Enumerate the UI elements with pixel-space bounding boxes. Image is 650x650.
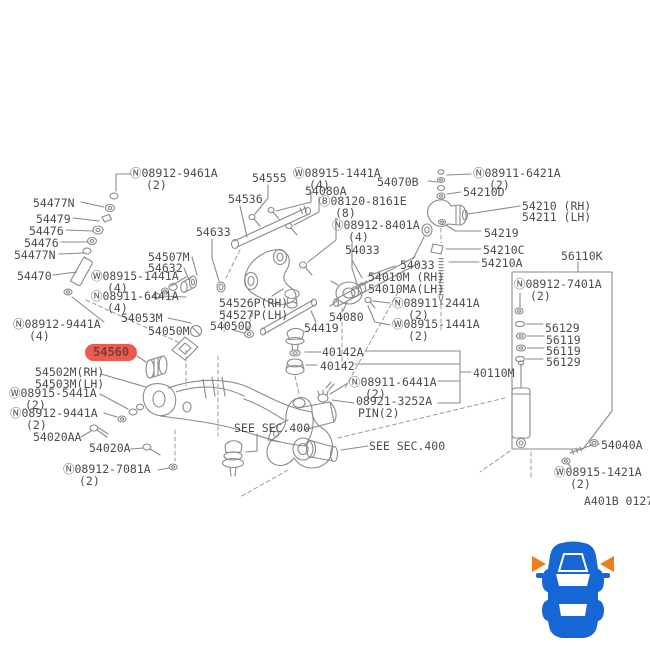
car-top-view-icon: [532, 542, 614, 639]
part-label-54470: 54470: [17, 270, 52, 282]
part-label-54477N-a: 54477N: [33, 197, 75, 209]
see-section-400-label-b: SEE SEC.400: [369, 440, 445, 452]
part-label-40142: 40142: [320, 360, 355, 372]
hardware-label-08912-9441A-b: Ⓝ08912-9441A(2): [10, 407, 98, 432]
hardware-label-08912-9461A: Ⓝ08912-9461A(2): [130, 167, 218, 192]
hardware-label-08921-3252A-pin: 08921-3252APIN(2): [356, 395, 432, 420]
part-label-54536: 54536: [228, 193, 263, 205]
hardware-label-08912-8401A: Ⓝ08912-8401A(4): [332, 219, 420, 244]
hardware-label-08120-8161E: Ⓑ08120-8161E(8): [319, 195, 407, 220]
part-label-54020AA: 54020AA: [33, 431, 81, 443]
diagram-code: A401B 0127: [584, 495, 650, 507]
part-label-54070B: 54070B: [377, 176, 419, 188]
part-label-54210D: 54210D: [463, 186, 505, 198]
part-label-40142A: 40142A: [322, 346, 364, 358]
highlighted-part-label-54560[interactable]: 54560: [85, 344, 137, 361]
parts-diagram-page: Ⓝ08912-9461A(2) Ⓦ08915-1441A(4) Ⓝ08911-6…: [0, 0, 650, 650]
hardware-label-08912-7401A: Ⓝ08912-7401A(2): [514, 278, 602, 303]
hardware-label-08915-1421A: Ⓦ08915-1421A(2): [554, 466, 642, 491]
part-label-54050M: 54050M: [148, 325, 190, 337]
hardware-label-08915-1441A-c: Ⓦ08915-1441A(2): [392, 318, 480, 343]
part-label-40110M: 40110M: [473, 367, 515, 379]
vehicle-location-icon: [526, 540, 622, 642]
part-label-54010MA-LH: 54010MA(LH): [368, 283, 444, 295]
part-label-56129-b: 56129: [546, 356, 581, 368]
part-label-54633: 54633: [196, 226, 231, 238]
part-label-54210C: 54210C: [483, 244, 525, 256]
right-arrow-icon: [600, 556, 614, 572]
part-label-56110K: 56110K: [561, 250, 603, 262]
part-label-54210A: 54210A: [481, 257, 523, 269]
part-label-54033-a: 54033: [345, 244, 380, 256]
part-label-54020A: 54020A: [89, 442, 131, 454]
left-arrow-icon: [532, 556, 546, 572]
part-label-54053M: 54053M: [121, 312, 163, 324]
part-label-54419: 54419: [304, 322, 339, 334]
part-label-54555: 54555: [252, 172, 287, 184]
part-label-54211-LH: 54211 (LH): [522, 211, 591, 223]
hardware-label-08912-9441A-a: Ⓝ08912-9441A(4): [13, 318, 101, 343]
hardware-label-08912-7081A: Ⓝ08912-7081A(2): [63, 463, 151, 488]
part-label-54040A: 54040A: [601, 439, 643, 451]
part-label-54219: 54219: [484, 227, 519, 239]
part-label-54050D: 54050D: [210, 320, 252, 332]
part-label-54477N-b: 54477N: [14, 249, 56, 261]
see-section-400-label-a: SEE SEC.400: [234, 422, 310, 434]
